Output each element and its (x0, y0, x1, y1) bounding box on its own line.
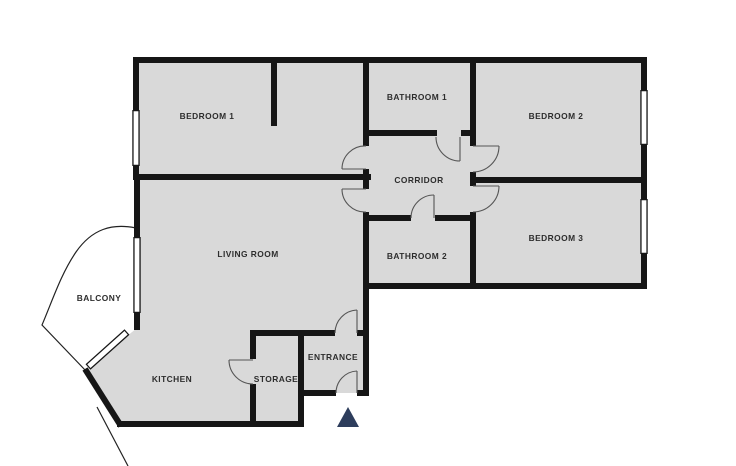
room-label-corridor: CORRIDOR (394, 175, 443, 185)
room-label-bedroom-1: BEDROOM 1 (180, 111, 235, 121)
room-label-kitchen: KITCHEN (152, 374, 192, 384)
room-label-entrance: ENTRANCE (308, 352, 358, 362)
floor-plan: BEDROOM 1BATHROOM 1BEDROOM 2CORRIDORBEDR… (0, 0, 736, 466)
room-label-balcony: BALCONY (77, 293, 122, 303)
floor-plan-svg: BEDROOM 1BATHROOM 1BEDROOM 2CORRIDORBEDR… (0, 0, 736, 466)
entrance-marker (337, 407, 359, 427)
room-label-bathroom-1: BATHROOM 1 (387, 92, 447, 102)
room-label-bedroom-3: BEDROOM 3 (529, 233, 584, 243)
room-label-storage: STORAGE (254, 374, 298, 384)
room-label-living-room: LIVING ROOM (217, 249, 278, 259)
room-label-bathroom-2: BATHROOM 2 (387, 251, 447, 261)
room-label-bedroom-2: BEDROOM 2 (529, 111, 584, 121)
